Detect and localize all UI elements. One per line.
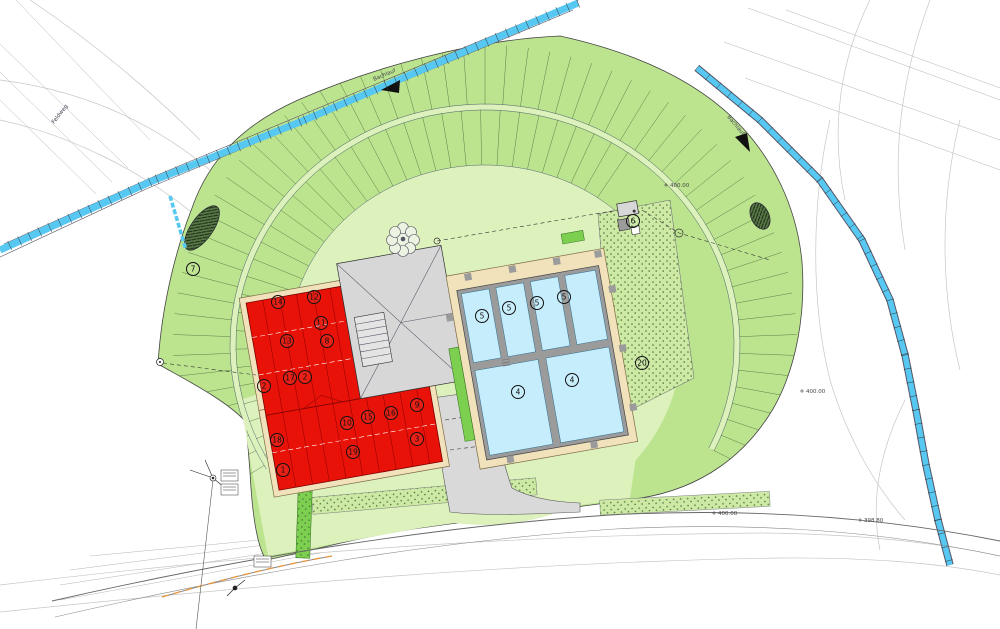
svg-text:10: 10 — [342, 419, 352, 428]
plan-marker-10: 10 — [341, 417, 354, 430]
plan-marker-5: 5 — [558, 291, 571, 304]
svg-text:5: 5 — [507, 304, 512, 313]
elevation-label: 400.00 — [806, 389, 826, 395]
svg-text:13: 13 — [282, 337, 292, 346]
plan-marker-5: 5 — [531, 297, 544, 310]
plan-marker-15: 15 — [362, 411, 375, 424]
plan-marker-2: 2 — [258, 380, 271, 393]
building-upper-wing — [246, 286, 361, 417]
stream-label: Feldweg — [51, 104, 70, 126]
plan-marker-6: 6 — [627, 215, 640, 228]
svg-text:9: 9 — [415, 401, 420, 410]
svg-text:12: 12 — [309, 293, 319, 302]
plan-marker-12: 12 — [308, 291, 321, 304]
plan-marker-9: 9 — [411, 399, 424, 412]
plan-marker-19: 19 — [347, 446, 360, 459]
svg-text:11: 11 — [316, 319, 326, 328]
plan-marker-4: 4 — [566, 374, 579, 387]
site-plan-page: 726201412111381721811019151693555544 400… — [0, 0, 1000, 629]
svg-text:5: 5 — [535, 299, 540, 308]
svg-text:20: 20 — [637, 359, 647, 368]
plan-marker-18: 18 — [271, 434, 284, 447]
plan-marker-3: 3 — [411, 433, 424, 446]
utility-pole — [227, 580, 245, 596]
tree-symbol — [387, 223, 420, 257]
plan-marker-2: 2 — [299, 371, 312, 384]
elevation-label: 400.00 — [670, 183, 690, 189]
svg-text:2: 2 — [262, 382, 267, 391]
svg-text:8: 8 — [325, 337, 330, 346]
site-plan-drawing: 726201412111381721811019151693555544 400… — [0, 0, 1000, 629]
svg-text:6: 6 — [631, 217, 636, 226]
svg-text:7: 7 — [191, 265, 196, 274]
plan-marker-17: 17 — [284, 372, 297, 385]
plan-marker-20: 20 — [636, 357, 649, 370]
svg-text:2: 2 — [303, 373, 308, 382]
plan-marker-1: 1 — [277, 464, 290, 477]
south-road — [52, 513, 1000, 617]
elevation-label: 398.80 — [864, 518, 884, 524]
svg-text:16: 16 — [386, 409, 396, 418]
plan-marker-5: 5 — [476, 310, 489, 323]
svg-text:4: 4 — [516, 388, 521, 397]
elevation-label: 400.00 — [718, 511, 738, 517]
plan-marker-11: 11 — [315, 317, 328, 330]
plan-marker-14: 14 — [272, 296, 285, 309]
svg-text:5: 5 — [562, 293, 567, 302]
plan-marker-5: 5 — [503, 302, 516, 315]
svg-text:3: 3 — [415, 435, 420, 444]
svg-text:5: 5 — [480, 312, 485, 321]
svg-text:19: 19 — [348, 448, 358, 457]
svg-text:17: 17 — [285, 374, 295, 383]
svg-text:18: 18 — [272, 436, 282, 445]
plan-marker-4: 4 — [512, 386, 525, 399]
svg-text:14: 14 — [273, 298, 283, 307]
road-marking-orange — [162, 556, 332, 597]
svg-text:15: 15 — [363, 413, 373, 422]
plan-marker-13: 13 — [281, 335, 294, 348]
plan-marker-7: 7 — [187, 263, 200, 276]
plan-marker-8: 8 — [321, 335, 334, 348]
svg-text:1: 1 — [281, 466, 286, 475]
svg-text:4: 4 — [570, 376, 575, 385]
plan-marker-16: 16 — [385, 407, 398, 420]
